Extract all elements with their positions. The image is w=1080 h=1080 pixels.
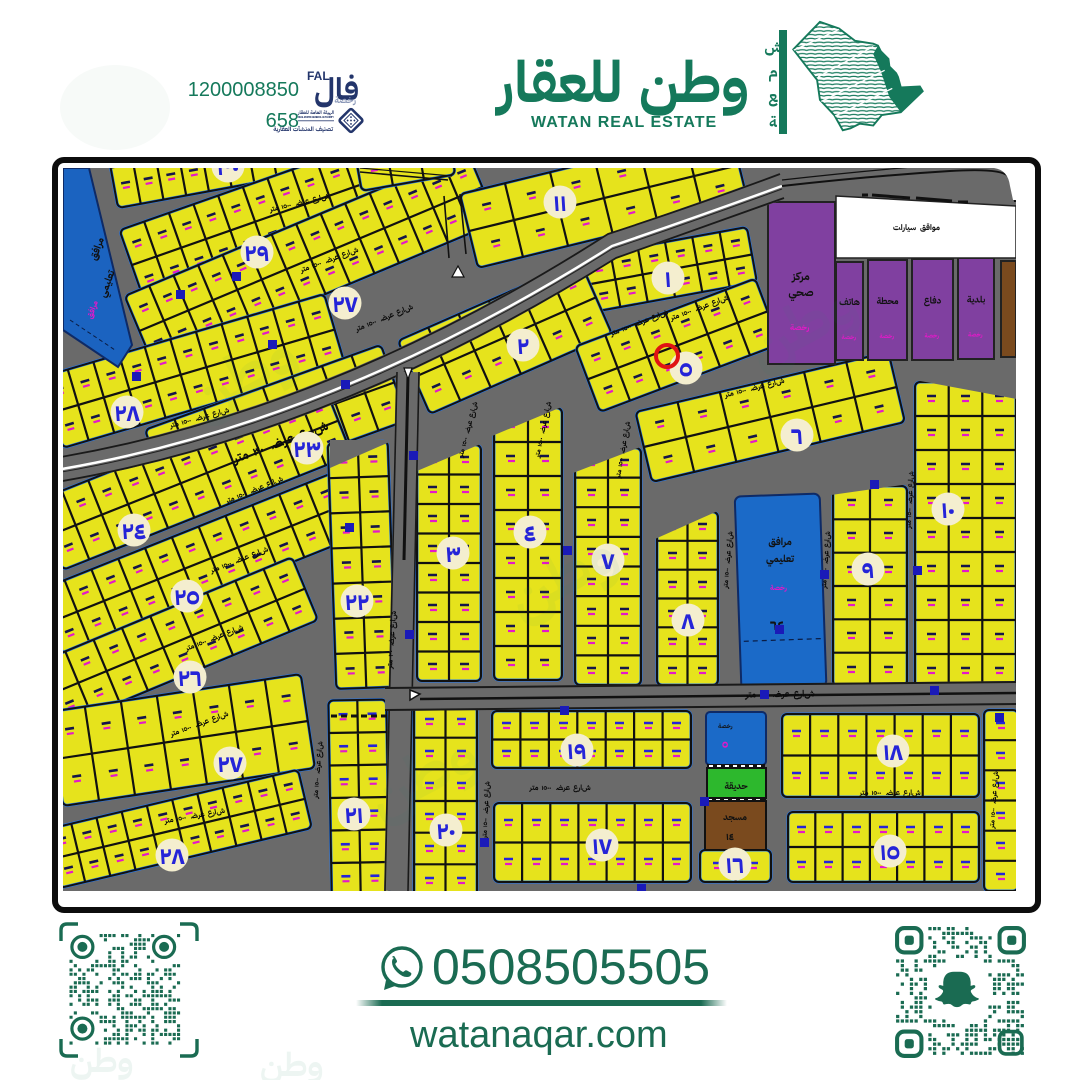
- svg-text:FAL: FAL: [307, 69, 330, 83]
- svg-text:REAL ESTATE GENERAL AUTHORITY: REAL ESTATE GENERAL AUTHORITY: [298, 115, 334, 119]
